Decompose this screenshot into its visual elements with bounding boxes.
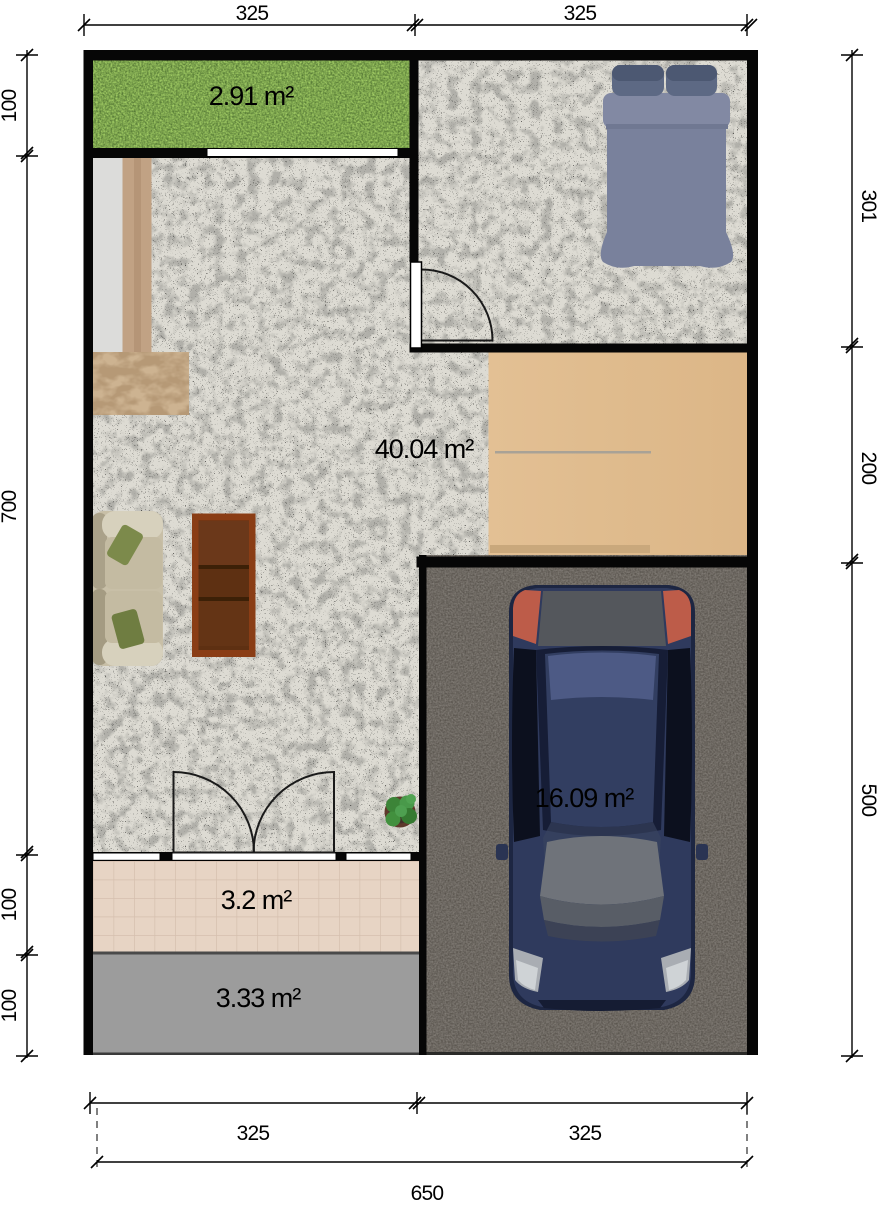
svg-text:325: 325 <box>236 2 269 25</box>
svg-text:3.33 m²: 3.33 m² <box>216 983 302 1013</box>
svg-text:3.2 m²: 3.2 m² <box>221 885 293 915</box>
svg-text:100: 100 <box>0 90 21 123</box>
svg-text:100: 100 <box>0 889 21 922</box>
svg-text:325: 325 <box>564 2 597 25</box>
svg-text:325: 325 <box>569 1122 602 1145</box>
svg-text:200: 200 <box>857 452 880 485</box>
svg-text:2.91 m²: 2.91 m² <box>209 81 295 111</box>
svg-text:700: 700 <box>0 491 21 524</box>
svg-text:650: 650 <box>411 1182 444 1205</box>
svg-text:500: 500 <box>857 784 880 817</box>
svg-text:325: 325 <box>237 1122 270 1145</box>
svg-text:16.09 m²: 16.09 m² <box>535 783 635 813</box>
svg-text:100: 100 <box>0 990 21 1023</box>
svg-text:301: 301 <box>857 190 880 223</box>
svg-text:40.04 m²: 40.04 m² <box>375 434 475 464</box>
